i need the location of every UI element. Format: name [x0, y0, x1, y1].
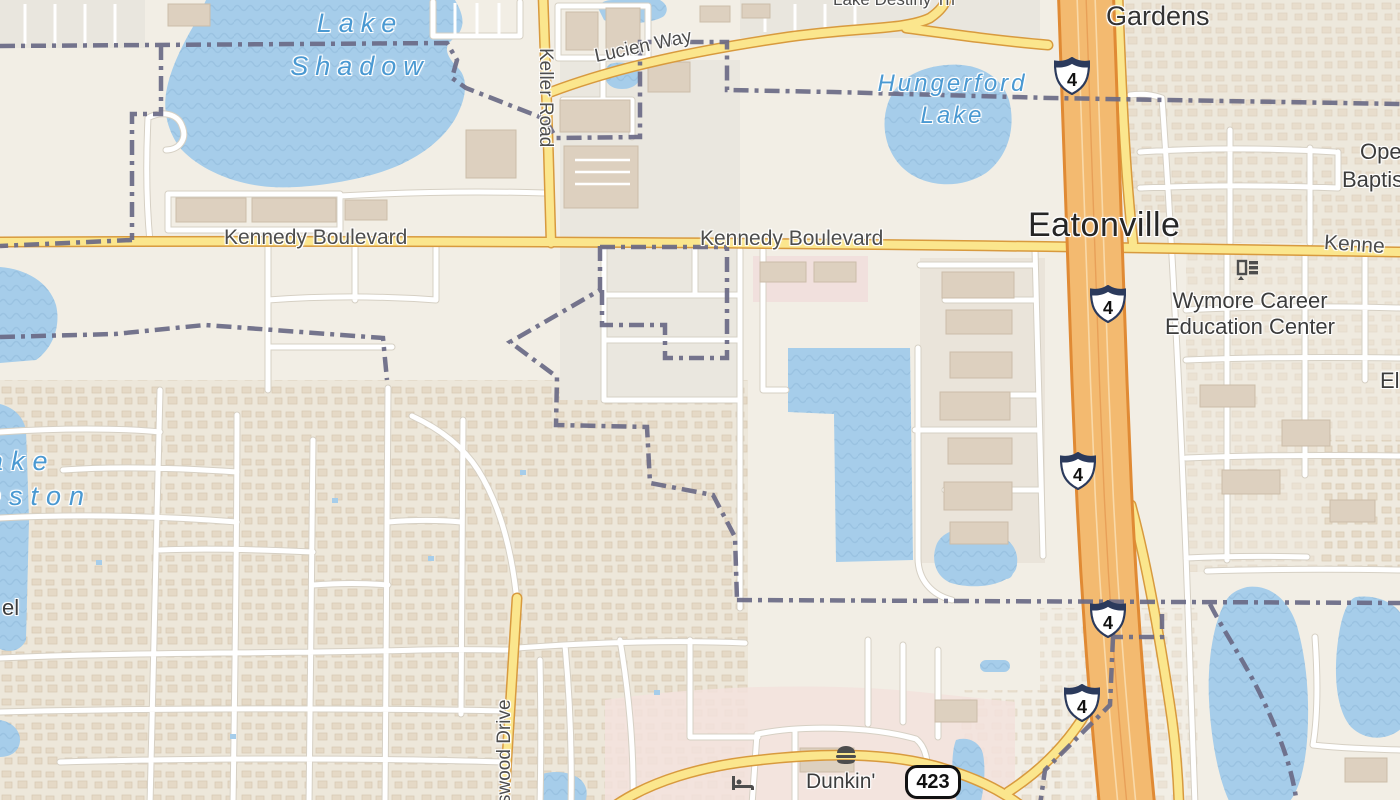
edge-label-el-right: El — [1380, 368, 1400, 394]
hungerford-lake-label: Hungerford Lake — [855, 70, 1050, 130]
kennedy-boulevard-label-west: Kennedy Boulevard — [224, 226, 407, 250]
i4-shield: 4 — [1054, 57, 1090, 95]
edge-label-baptis: Baptis — [1342, 167, 1400, 193]
kennedy-boulevard-label-center: Kennedy Boulevard — [700, 227, 883, 251]
wymore-career-center-label: Wymore Career Education Center — [1150, 288, 1350, 340]
lake-weston-label-line1: ake — [0, 446, 56, 477]
svg-text:4: 4 — [1077, 697, 1087, 717]
svg-text:4: 4 — [1103, 613, 1113, 633]
edge-label-ope: Ope — [1360, 139, 1400, 165]
svg-text:4: 4 — [1103, 298, 1113, 318]
gardens-suburb-label: Gardens — [1106, 1, 1210, 32]
keller-road-label: Keller Road — [534, 48, 556, 147]
lake-shadow-label: Lake Shadow — [270, 8, 450, 82]
edge-label-el-left: el — [2, 595, 19, 621]
svg-text:4: 4 — [1067, 70, 1077, 90]
map-tiles — [0, 0, 1400, 800]
bed-icon — [731, 774, 755, 792]
i4-shield: 4 — [1060, 452, 1096, 490]
svg-text:4: 4 — [1073, 465, 1083, 485]
i4-shield: 4 — [1090, 285, 1126, 323]
dunkin-label: Dunkin' — [806, 770, 875, 794]
lake-destiny-road-label: Lake Destiny Trl — [833, 0, 955, 10]
route-423-shield: 423 — [905, 765, 961, 799]
map-canvas[interactable]: Lake Shadow Hungerford Lake ake eston La… — [0, 0, 1400, 800]
kennedy-boulevard-label-east: Kenne — [1323, 231, 1385, 259]
lake-weston-label-line2: eston — [0, 481, 92, 512]
burger-icon — [834, 745, 858, 765]
eatonville-town-label: Eatonville — [1028, 206, 1180, 245]
school-icon — [1236, 259, 1260, 281]
swood-drive-label: swood Drive — [494, 612, 516, 800]
i4-shield: 4 — [1064, 684, 1100, 722]
i4-shield: 4 — [1090, 600, 1126, 638]
